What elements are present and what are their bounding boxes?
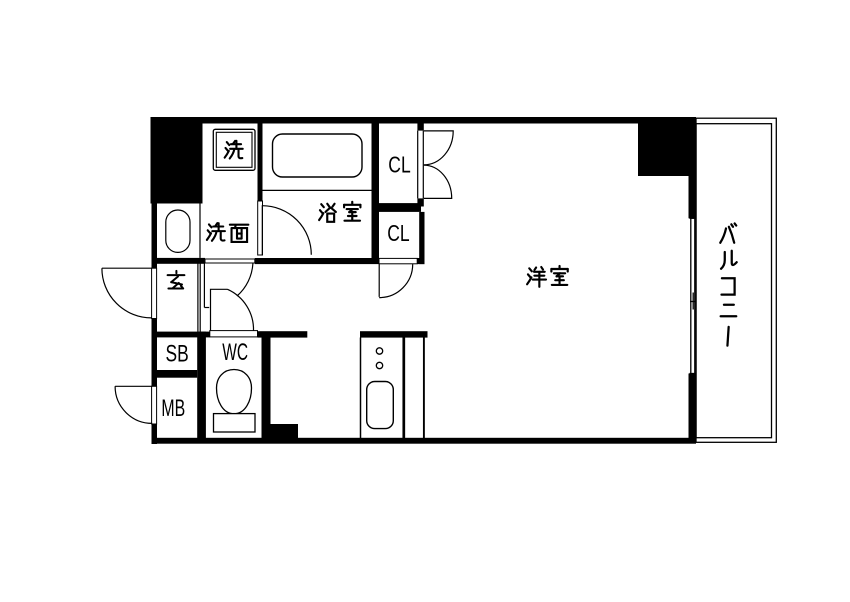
svg-text:CL: CL bbox=[388, 151, 410, 177]
svg-text:WC: WC bbox=[222, 339, 248, 366]
svg-text:MB: MB bbox=[161, 395, 185, 422]
svg-text:SB: SB bbox=[166, 341, 189, 368]
svg-text:CL: CL bbox=[387, 220, 409, 246]
